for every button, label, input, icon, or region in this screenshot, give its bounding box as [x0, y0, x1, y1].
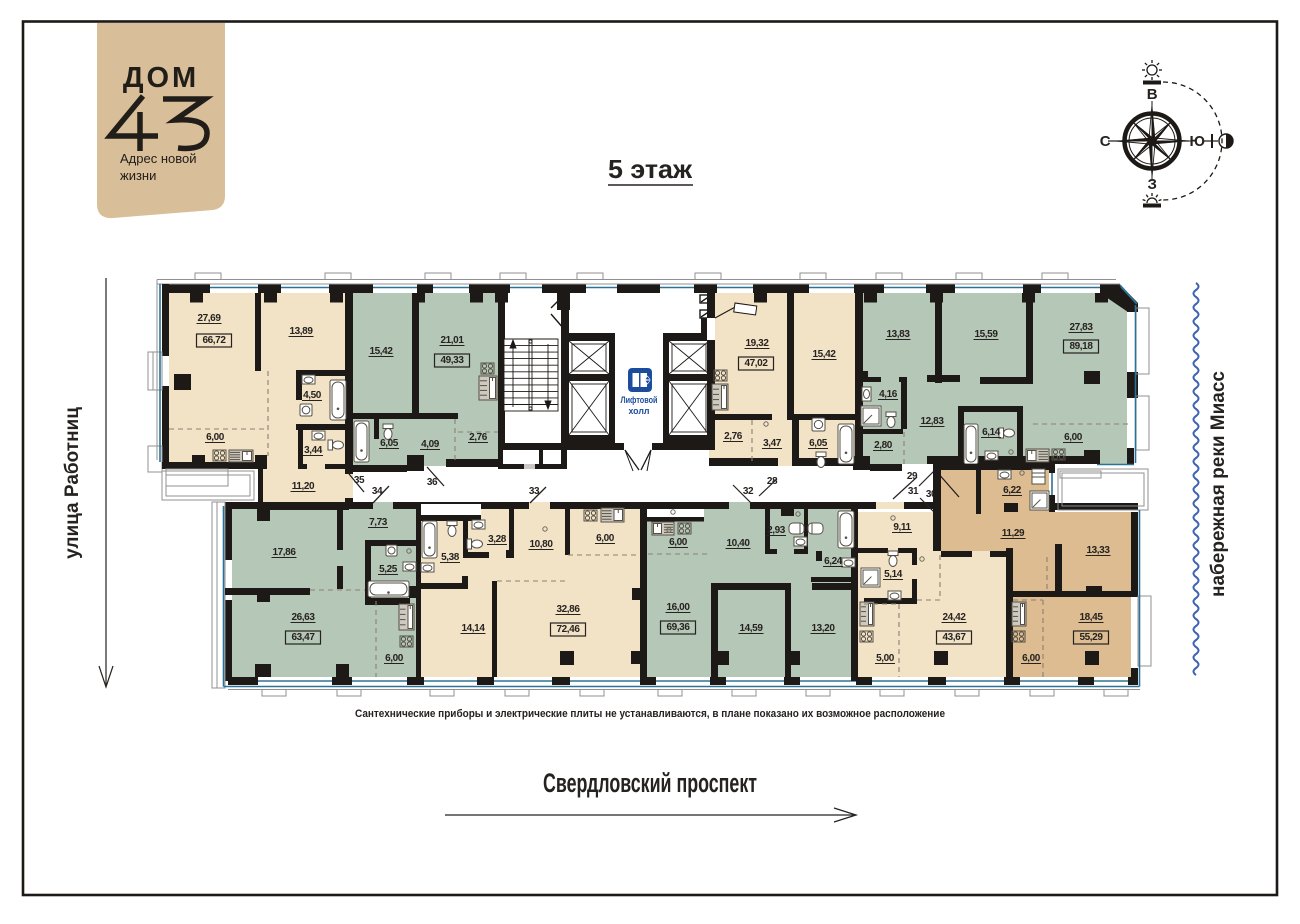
svg-text:13,89: 13,89: [289, 326, 313, 337]
svg-text:улица Работниц: улица Работниц: [62, 407, 83, 559]
svg-text:26,63: 26,63: [291, 612, 315, 623]
svg-text:55,29: 55,29: [1079, 632, 1103, 643]
svg-text:5,14: 5,14: [884, 569, 903, 580]
svg-text:17,86: 17,86: [272, 547, 296, 558]
svg-text:5,38: 5,38: [441, 552, 460, 563]
svg-text:14,14: 14,14: [461, 623, 485, 634]
svg-text:набережная реки Миасс: набережная реки Миасс: [1208, 371, 1229, 597]
svg-text:49,33: 49,33: [440, 355, 464, 366]
svg-text:28: 28: [767, 476, 778, 487]
svg-text:66,72: 66,72: [202, 335, 226, 346]
svg-text:6,22: 6,22: [1003, 485, 1022, 496]
svg-text:14,59: 14,59: [739, 623, 763, 634]
svg-text:89,18: 89,18: [1069, 341, 1093, 352]
svg-text:35: 35: [354, 475, 365, 486]
svg-text:З: З: [1148, 176, 1157, 193]
svg-text:6,05: 6,05: [380, 438, 399, 449]
svg-text:6,00: 6,00: [385, 653, 404, 664]
svg-text:27,83: 27,83: [1069, 322, 1093, 333]
svg-text:12,83: 12,83: [920, 416, 944, 427]
svg-text:5,00: 5,00: [876, 653, 895, 664]
svg-text:3,28: 3,28: [488, 534, 507, 545]
svg-text:15,42: 15,42: [369, 346, 393, 357]
svg-text:31: 31: [908, 486, 919, 497]
svg-text:13,83: 13,83: [886, 329, 910, 340]
svg-text:6,00: 6,00: [669, 537, 688, 548]
svg-text:27,69: 27,69: [197, 313, 221, 324]
svg-text:2,76: 2,76: [469, 432, 488, 443]
svg-text:16,00: 16,00: [666, 602, 690, 613]
svg-text:10,40: 10,40: [726, 538, 750, 549]
svg-text:6,05: 6,05: [809, 438, 828, 449]
svg-text:9,11: 9,11: [893, 522, 911, 533]
svg-text:6,24: 6,24: [824, 556, 843, 567]
svg-text:Свердловский проспект: Свердловский проспект: [543, 768, 757, 798]
svg-text:19,32: 19,32: [745, 338, 769, 349]
svg-text:72,46: 72,46: [556, 624, 580, 635]
svg-text:2,80: 2,80: [874, 440, 893, 451]
svg-text:4,16: 4,16: [879, 389, 898, 400]
svg-text:47,02: 47,02: [744, 358, 768, 369]
svg-text:21,01: 21,01: [440, 335, 464, 346]
svg-text:2,93: 2,93: [767, 525, 786, 536]
svg-text:6,00: 6,00: [206, 432, 225, 443]
svg-text:4,09: 4,09: [421, 439, 440, 450]
svg-text:6,14: 6,14: [982, 427, 1001, 438]
svg-text:3,44: 3,44: [304, 445, 323, 456]
svg-text:63,47: 63,47: [291, 632, 315, 643]
svg-text:11,20: 11,20: [292, 481, 315, 492]
svg-text:32: 32: [743, 486, 754, 497]
svg-text:Сантехнические приборы и элект: Сантехнические приборы и электрические п…: [355, 708, 945, 720]
svg-text:5,25: 5,25: [379, 564, 398, 575]
svg-text:18,45: 18,45: [1079, 612, 1103, 623]
svg-text:Адрес новой: Адрес новой: [120, 151, 197, 166]
svg-text:15,42: 15,42: [812, 349, 836, 360]
svg-text:Лифтовой: Лифтовой: [621, 395, 658, 406]
svg-text:6,00: 6,00: [1064, 432, 1083, 443]
svg-text:В: В: [1147, 86, 1158, 103]
svg-text:24,42: 24,42: [942, 612, 966, 623]
svg-text:10,80: 10,80: [529, 539, 553, 550]
svg-text:6,00: 6,00: [1022, 653, 1041, 664]
svg-text:32,86: 32,86: [556, 604, 580, 615]
svg-text:6,00: 6,00: [596, 533, 615, 544]
svg-text:жизни: жизни: [120, 168, 156, 183]
svg-text:43,67: 43,67: [942, 632, 966, 643]
svg-text:29: 29: [907, 471, 918, 482]
svg-text:13,33: 13,33: [1086, 545, 1110, 556]
svg-text:2,76: 2,76: [724, 431, 743, 442]
svg-text:36: 36: [427, 477, 438, 488]
svg-text:11,29: 11,29: [1002, 528, 1025, 539]
svg-text:15,59: 15,59: [974, 329, 998, 340]
svg-text:Ю: Ю: [1189, 133, 1204, 150]
svg-text:5 этаж: 5 этаж: [608, 154, 693, 184]
svg-text:С: С: [1100, 133, 1111, 150]
svg-text:7,73: 7,73: [369, 517, 388, 528]
svg-text:4,50: 4,50: [303, 390, 322, 401]
svg-text:69,36: 69,36: [666, 622, 690, 633]
svg-text:34: 34: [372, 486, 383, 497]
svg-text:ДОМ: ДОМ: [123, 62, 199, 94]
svg-text:3,47: 3,47: [763, 438, 782, 449]
svg-text:холл: холл: [629, 406, 650, 417]
svg-text:13,20: 13,20: [811, 623, 835, 634]
